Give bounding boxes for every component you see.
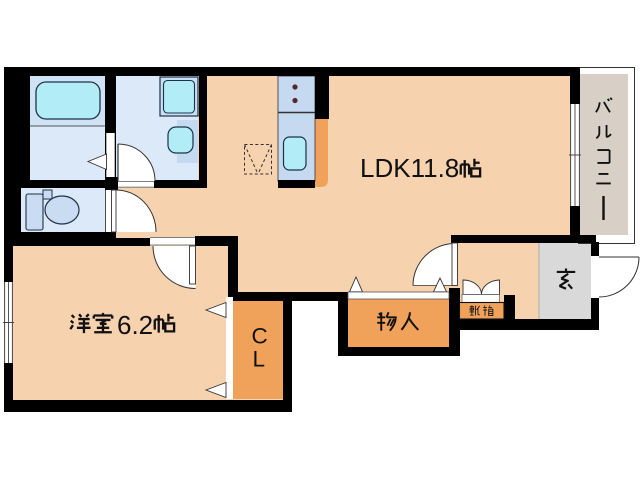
- svg-text:6.2: 6.2: [117, 310, 153, 340]
- svg-text:LDK11.8: LDK11.8: [360, 153, 459, 183]
- svg-text:L: L: [253, 347, 266, 372]
- svg-text:C: C: [252, 324, 268, 349]
